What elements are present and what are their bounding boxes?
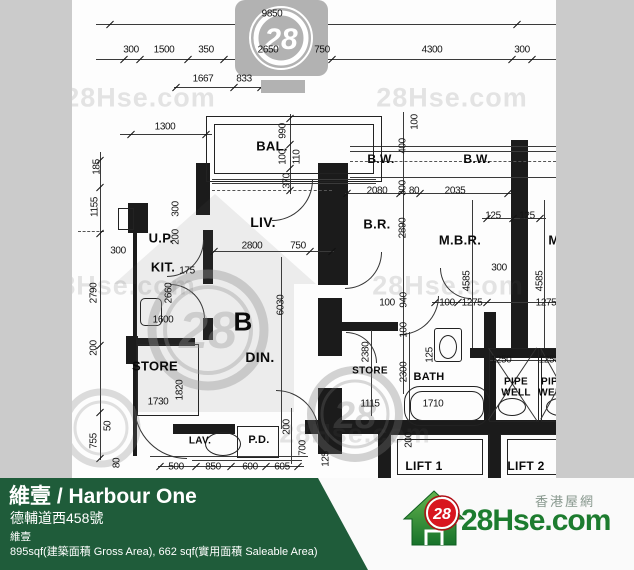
room-label: M [548, 233, 556, 248]
room-label: BATH [414, 371, 445, 383]
room-label: B.R. [363, 217, 390, 232]
dim-label: 940 [399, 292, 410, 308]
room-label: LIFT 1 [405, 459, 442, 473]
dim-label: 2890 [398, 218, 409, 239]
room-label: PIPE [504, 377, 528, 388]
dim-label: 4585 [462, 271, 473, 292]
dim-label: 1275 [536, 298, 556, 309]
dim-label: 600 [242, 462, 258, 473]
dim-label: 1500 [154, 45, 175, 56]
room-label: B.W. [367, 152, 394, 166]
dim-label: 9850 [262, 9, 283, 20]
area-info: 895sqf(建築面積 Gross Area), 662 sqf(實用面積 Sa… [10, 543, 318, 559]
dim-label: 300 [171, 201, 182, 217]
fixture-box [410, 391, 484, 421]
dim-label: 1275 [462, 298, 483, 309]
dim-label: 4585 [535, 271, 546, 292]
dim-label: 755 [89, 433, 100, 449]
room-label: BAL. [256, 139, 288, 154]
dim-label: 100 [379, 298, 395, 309]
room-label: STORE [132, 359, 178, 374]
dim-label: 125 [519, 211, 535, 222]
dim-label: 1667 [193, 74, 214, 85]
dim-label: 2800 [242, 241, 263, 252]
dim-label: 200 [89, 340, 100, 356]
dim-label: 100 [439, 298, 455, 309]
dim-label: 100 [399, 322, 410, 338]
room-label: LIV. [250, 214, 276, 230]
dim-label: 175 [179, 266, 195, 277]
dim-label: 400 [398, 138, 409, 154]
dim-label: 2660 [164, 283, 175, 304]
estate-name: 維壹 [10, 529, 31, 544]
dim-label: 300 [398, 180, 409, 196]
wall [511, 140, 528, 348]
room-label: WELL [501, 388, 531, 399]
dim-line [120, 134, 212, 135]
dim-label: 125 [321, 451, 332, 467]
dim-label: 1115 [360, 399, 379, 410]
dim-label: 1155 [90, 197, 101, 217]
dim-label: 300 [491, 263, 507, 274]
dim-label: 2380 [361, 342, 372, 363]
dim-label: 80 [409, 186, 419, 197]
dim-label: 350 [198, 45, 214, 56]
room-label: U.P. [149, 231, 174, 246]
dim-label: 1710 [423, 399, 444, 410]
dim-label: 110 [292, 150, 303, 165]
dim-label: 1820 [175, 380, 186, 401]
dim-label: 185 [92, 159, 103, 175]
room-label: LAV. [189, 436, 211, 447]
dim-label: 1730 [148, 397, 169, 408]
dim-label: 1250 [491, 355, 512, 366]
dim-label: 125 [485, 211, 501, 222]
room-label: M.B.R. [439, 233, 481, 248]
dim-label: 990 [278, 123, 289, 139]
svg-text:28: 28 [432, 506, 451, 523]
dim-label: 605 [274, 462, 290, 473]
property-title: 維壹 / Harbour One [9, 480, 197, 510]
dim-label: 300 [110, 246, 126, 257]
dim-label: 1300 [155, 122, 176, 133]
room-label: KIT. [151, 260, 175, 275]
dim-label: 300 [514, 45, 530, 56]
room-label: LIFT 2 [507, 459, 544, 473]
dim-label: 200 [282, 419, 293, 435]
dim-label: 2300 [399, 362, 410, 383]
dim-label: 2790 [89, 283, 100, 304]
dim-label: 1250 [539, 355, 556, 366]
dim-label: 6030 [276, 295, 287, 316]
svg-text:28: 28 [178, 302, 237, 360]
wall [340, 322, 398, 331]
dim-label: 750 [290, 241, 306, 252]
room-label: DIN. [245, 349, 274, 365]
dim-label: 50 [103, 421, 114, 431]
floor-plan-image: 28 28 28 9850300150035026507504300300166… [0, 0, 634, 570]
dim-label: 1600 [153, 315, 174, 326]
dim-label: 370 [282, 173, 293, 189]
dim-label: 2080 [367, 186, 388, 197]
28hse-logo: 28 28Hse.com 香港屋網 [395, 478, 634, 570]
property-address: 德輔道西458號 [10, 508, 103, 528]
dim-label: 4300 [422, 45, 443, 56]
dim-line [403, 112, 404, 394]
room-label: B.W. [463, 152, 490, 166]
dim-label: 300 [123, 45, 139, 56]
dim-label: 500 [168, 462, 184, 473]
dim-label: 125 [425, 347, 436, 363]
room-label: B [233, 307, 252, 338]
room-label: STORE [352, 366, 388, 377]
floor-plan: 28 28 28 9850300150035026507504300300166… [72, 0, 556, 478]
footer-bar: 維壹 / Harbour One 德輔道西458號 維壹 895sqf(建築面積… [0, 478, 634, 570]
dim-label: 833 [236, 74, 252, 85]
fixture-ellipse [439, 335, 457, 359]
room-label: PIPE [541, 377, 556, 388]
fixture-ellipse [498, 398, 526, 416]
dim-label: 100 [410, 114, 421, 130]
watermark-text: 28Hse.com [376, 83, 528, 114]
watermark-text: 28Hse.com [72, 83, 216, 114]
dim-label: 2650 [258, 45, 279, 56]
dim-label: 700 [298, 440, 309, 456]
room-label: WELL [538, 388, 556, 399]
logo-tagline: 香港屋網 [535, 491, 595, 510]
dim-label: 200 [404, 432, 415, 448]
dim-label: 750 [314, 45, 330, 56]
room-label: P.D. [248, 434, 269, 446]
dim-label: 2035 [445, 186, 466, 197]
28hse-house-icon: 28 [402, 488, 466, 550]
dim-label: 850 [205, 462, 221, 473]
dim-label: 80 [112, 458, 123, 468]
